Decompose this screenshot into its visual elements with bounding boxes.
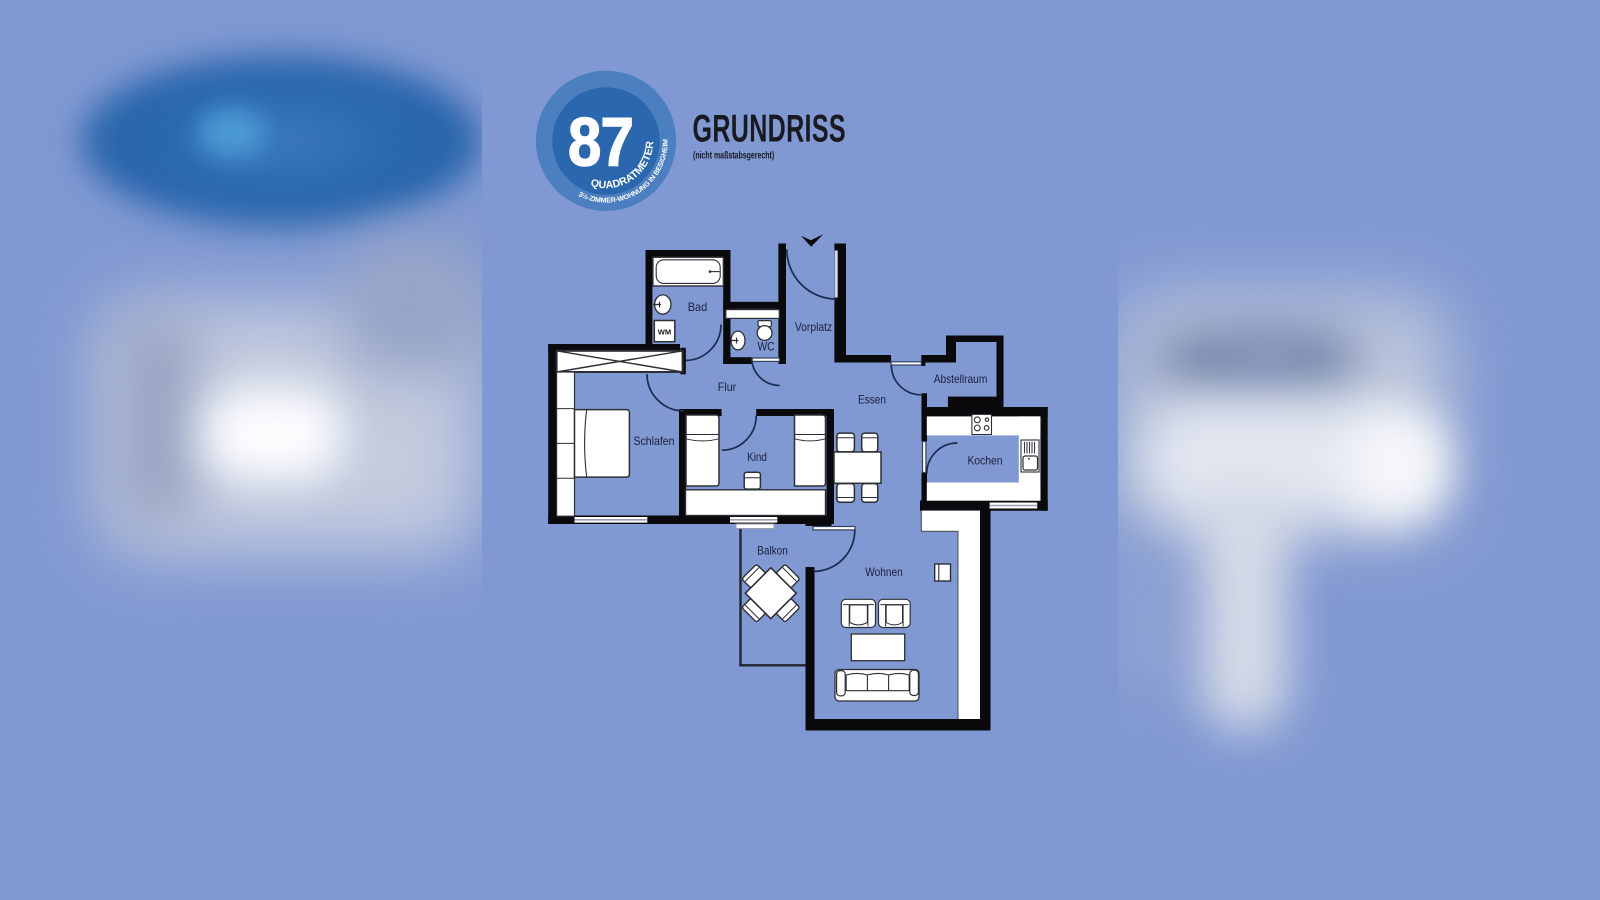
svg-text:Vorplatz: Vorplatz (795, 320, 832, 334)
svg-text:Wohnen: Wohnen (865, 565, 902, 579)
svg-text:Balkon: Balkon (757, 544, 788, 558)
svg-text:WM: WM (658, 328, 672, 337)
svg-text:(nicht maßstabsgerecht): (nicht maßstabsgerecht) (693, 149, 774, 161)
svg-text:Schlafen: Schlafen (633, 434, 674, 448)
svg-text:Bad: Bad (688, 300, 708, 314)
svg-text:Flur: Flur (718, 380, 736, 394)
svg-text:87: 87 (568, 103, 633, 181)
svg-text:WC: WC (757, 340, 774, 354)
svg-text:Kind: Kind (747, 450, 767, 464)
svg-text:GRUNDRISS: GRUNDRISS (692, 107, 846, 150)
svg-text:Abstellraum: Abstellraum (934, 372, 988, 386)
svg-text:Essen: Essen (858, 393, 886, 407)
svg-text:Kochen: Kochen (968, 454, 1003, 468)
